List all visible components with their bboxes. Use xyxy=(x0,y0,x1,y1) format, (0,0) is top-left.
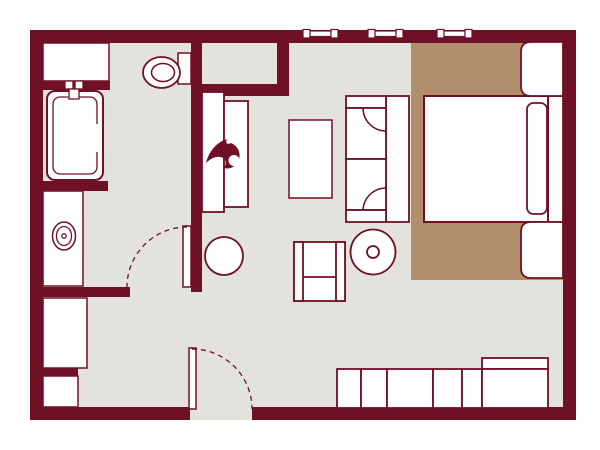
floor-plan xyxy=(0,0,600,450)
sofa-back xyxy=(386,96,409,222)
faucet-handle-left xyxy=(65,81,73,89)
wall-bottom-right xyxy=(252,407,576,420)
wall-middle-vertical xyxy=(191,43,202,292)
window-2-glazing xyxy=(375,31,396,37)
bed-headboard xyxy=(548,96,563,222)
armchair-arm-right xyxy=(336,242,345,301)
side-table-center xyxy=(367,246,379,258)
bed-pillow xyxy=(527,103,547,214)
wall-left xyxy=(30,30,43,420)
luggage-bench-back xyxy=(482,358,548,369)
nightstand-top xyxy=(521,42,563,96)
window-2-cap-right xyxy=(396,30,403,39)
wall-stub-tub-bottom xyxy=(43,181,108,191)
sofa-cushion-top xyxy=(346,108,386,159)
credenza-segment-3 xyxy=(387,369,433,408)
nightstand-bottom xyxy=(521,222,563,278)
window-2 xyxy=(368,30,403,39)
wall-stub-vanity xyxy=(43,287,130,297)
storage-cabinet-upper xyxy=(43,298,87,368)
armchair-arm-left xyxy=(294,242,303,301)
wall-right xyxy=(563,30,576,420)
window-2-cap-left xyxy=(368,30,375,39)
floor-plan-page xyxy=(0,0,600,450)
sofa-cushion-bottom xyxy=(346,159,386,210)
window-3-glazing xyxy=(444,31,465,37)
bathtub-rim-gap xyxy=(93,124,99,152)
window-3 xyxy=(437,30,472,39)
wall-closet-right xyxy=(277,43,289,96)
coffee-table xyxy=(289,120,332,198)
flame-icon-notch xyxy=(229,155,240,166)
wall-bottom-left xyxy=(30,407,190,420)
entry-door-leaf xyxy=(189,348,196,409)
sofa-armrest-top xyxy=(346,96,386,108)
luggage-bench xyxy=(482,369,548,408)
bath-shelf xyxy=(43,43,109,81)
window-1-cap-right xyxy=(331,30,338,39)
faucet-handle-right xyxy=(75,81,83,89)
sofa-armrest-bottom xyxy=(346,210,386,222)
window-3-cap-right xyxy=(465,30,472,39)
credenza-segment-1 xyxy=(337,369,361,408)
window-1 xyxy=(303,30,338,39)
credenza-segment-2 xyxy=(361,369,387,408)
faucet-spout xyxy=(69,89,79,99)
credenza-segment-5 xyxy=(462,369,482,408)
window-1-cap-left xyxy=(303,30,310,39)
credenza-segment-4 xyxy=(433,369,462,408)
storage-cabinet-lower xyxy=(43,376,78,407)
bathroom-door-leaf xyxy=(183,226,191,287)
wall-stub-storage xyxy=(43,368,78,376)
window-3-cap-left xyxy=(437,30,444,39)
window-1-glazing xyxy=(310,31,331,37)
round-table xyxy=(205,237,243,275)
